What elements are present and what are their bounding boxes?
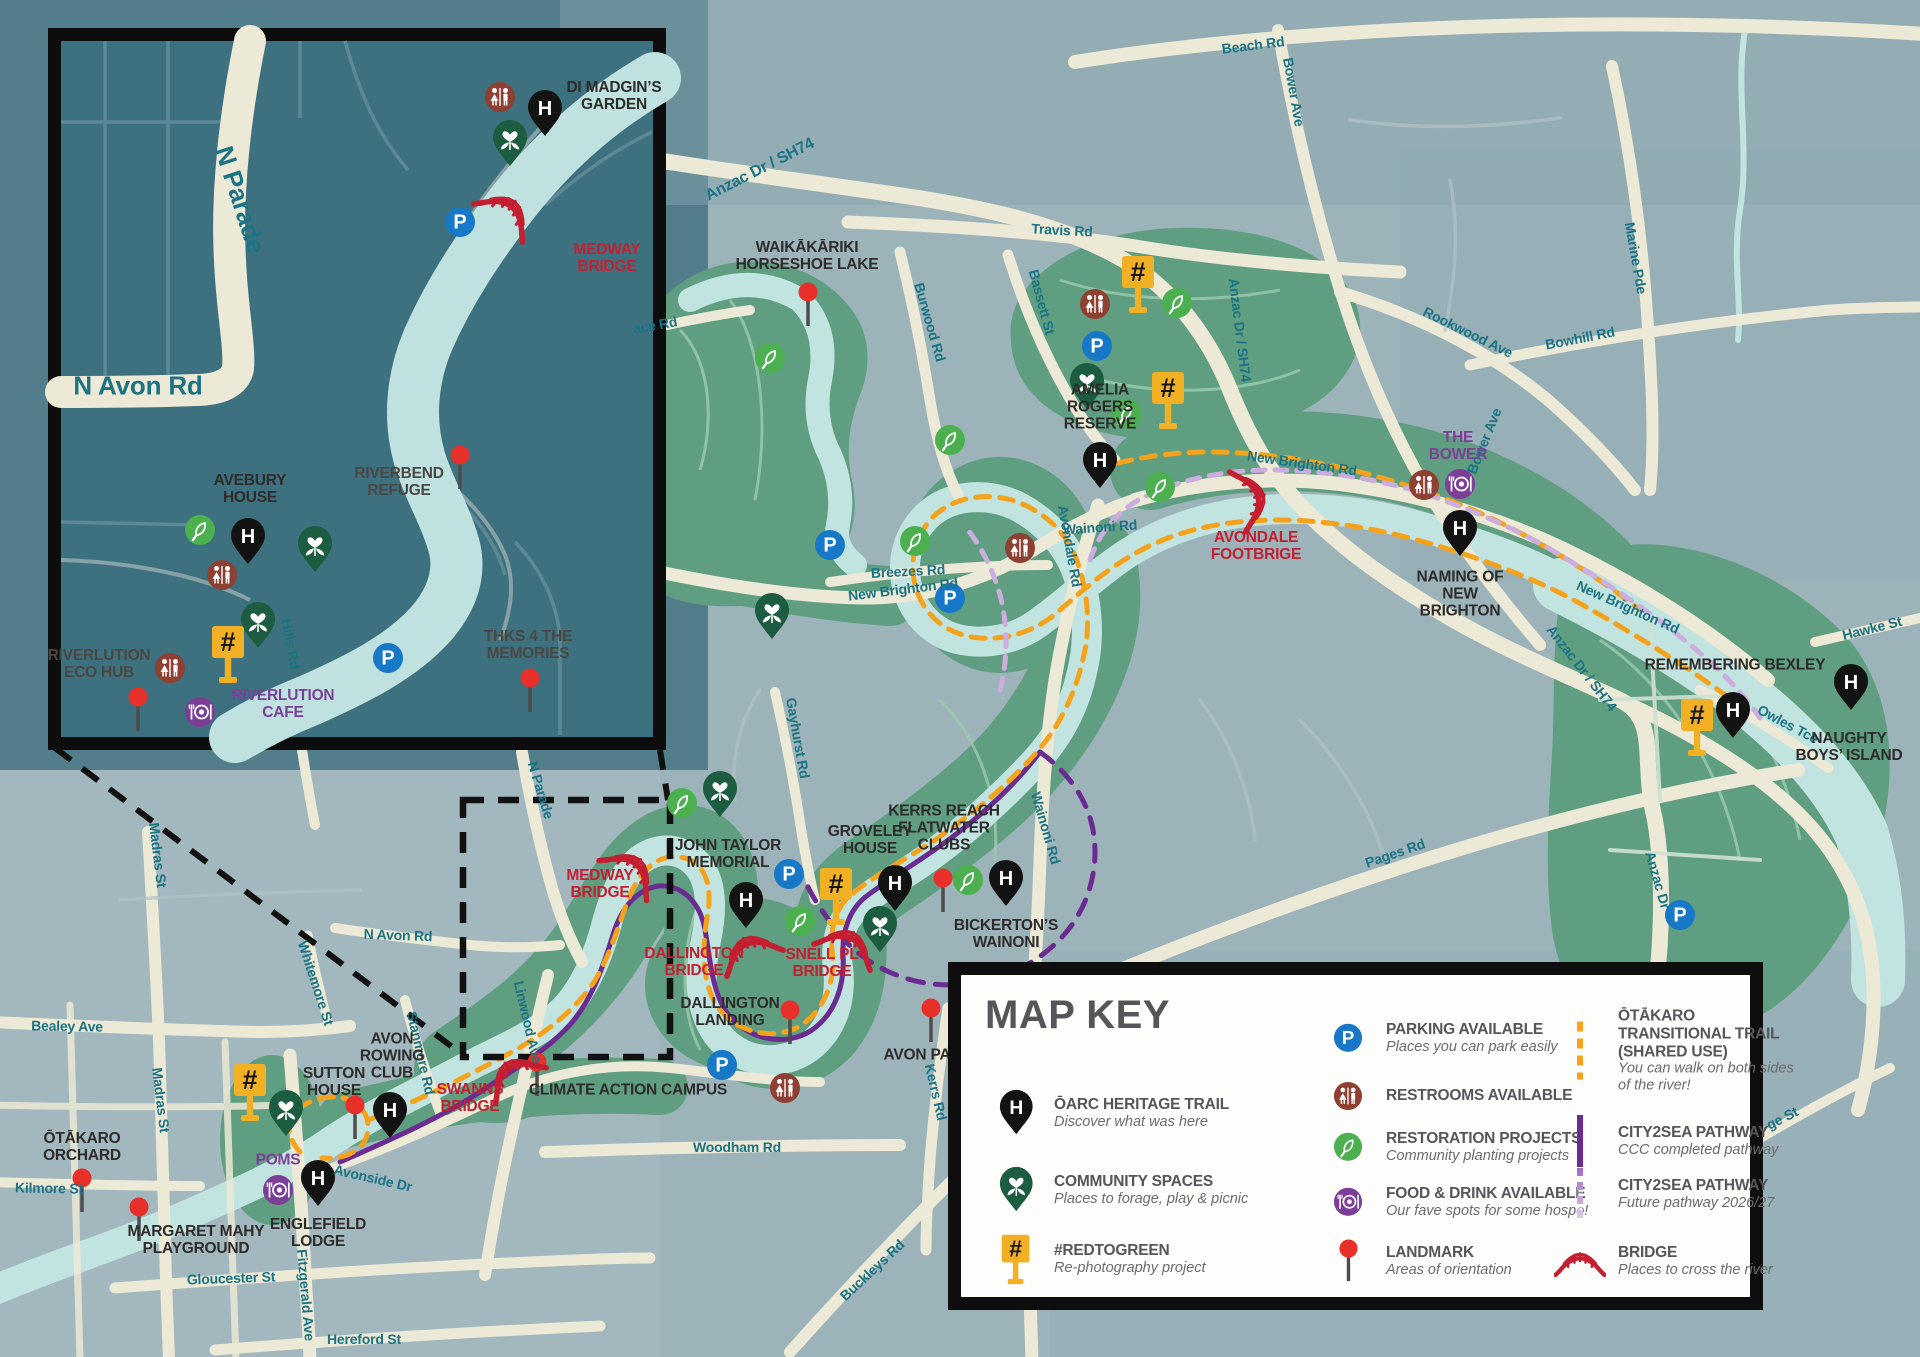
restoration-icon: [1111, 399, 1141, 429]
key-item-desc: CCC completed pathway: [1618, 1142, 1808, 1159]
restoration-icon: [935, 425, 965, 455]
key-item-trail-orange: ŌTĀKARO TRANSITIONAL TRAIL (SHARED USE)Y…: [1554, 1008, 1808, 1095]
key-item-trail-purple: CITY2SEA PATHWAYCCC completed pathway: [1554, 1115, 1808, 1167]
trail-purple-swatch: [1577, 1115, 1583, 1167]
inset-map: [48, 28, 666, 750]
food-icon: [1322, 1187, 1374, 1217]
restroom-icon: [770, 1073, 800, 1103]
parking-icon: [774, 859, 804, 889]
map-key-items: ŌARC HERITAGE TRAILDiscover what was her…: [974, 988, 1737, 1284]
restroom-icon: [207, 560, 237, 590]
restoration-icon: [755, 343, 785, 373]
food-icon: [263, 1175, 293, 1205]
key-item-desc: Places to cross the river: [1618, 1262, 1808, 1279]
trail-orange-icon: [1554, 1022, 1606, 1080]
parking-icon: [1322, 1023, 1374, 1053]
key-item-label: COMMUNITY SPACES: [1054, 1173, 1289, 1191]
parking-icon: [1082, 331, 1112, 361]
restroom-icon: [1080, 289, 1110, 319]
key-item-desc: You can walk on both sides of the river!: [1618, 1061, 1808, 1094]
map-canvas: H P: [0, 0, 1920, 1357]
parking-icon: [1665, 900, 1695, 930]
key-item-label: CITY2SEA PATHWAY: [1618, 1124, 1808, 1142]
landmark-icon: [1322, 1238, 1374, 1284]
restoration-icon: [185, 515, 215, 545]
food-icon: [185, 697, 215, 727]
key-item-label: #REDTOGREEN: [1054, 1242, 1289, 1260]
key-item-heritage: ŌARC HERITAGE TRAILDiscover what was her…: [990, 1088, 1289, 1138]
restroom-icon: [485, 82, 515, 112]
restoration-icon: [1322, 1132, 1374, 1162]
key-item-redtogreen: #REDTOGREENRe-photography project: [990, 1233, 1289, 1285]
food-icon: [1445, 469, 1475, 499]
key-item-label: BRIDGE: [1618, 1244, 1808, 1262]
trail-orange-swatch: [1577, 1022, 1583, 1080]
trail-lilac-icon: [1554, 1168, 1606, 1220]
heritage-icon: [990, 1088, 1042, 1138]
key-item-desc: Re-photography project: [1054, 1260, 1289, 1277]
bridge-icon: [1554, 1244, 1606, 1278]
parking-icon: [935, 583, 965, 613]
parking-icon: [445, 207, 475, 237]
key-item-desc: Discover what was here: [1054, 1114, 1289, 1131]
restoration-icon: [785, 906, 815, 936]
parking-icon: [815, 530, 845, 560]
trail-purple-icon: [1554, 1115, 1606, 1167]
key-item-label: CITY2SEA PATHWAY: [1618, 1177, 1808, 1195]
restoration-icon: [1162, 288, 1192, 318]
parking-icon: [707, 1050, 737, 1080]
trail-lilac-swatch: [1577, 1168, 1583, 1220]
key-item-label: ŌTĀKARO TRANSITIONAL TRAIL (SHARED USE): [1618, 1008, 1808, 1061]
key-item-desc: Future pathway 2026/27: [1618, 1195, 1808, 1212]
restoration-icon: [667, 788, 697, 818]
key-item-community: COMMUNITY SPACESPlaces to forage, play &…: [990, 1165, 1289, 1215]
community-icon: [990, 1165, 1042, 1215]
parking-icon: [373, 643, 403, 673]
key-item-trail-lilac: CITY2SEA PATHWAYFuture pathway 2026/27: [1554, 1168, 1808, 1220]
key-item-label: ŌARC HERITAGE TRAIL: [1054, 1096, 1289, 1114]
restroom-icon: [155, 653, 185, 683]
restoration-icon: [900, 526, 930, 556]
restroom-icon: [1005, 533, 1035, 563]
restroom-icon: [1409, 470, 1439, 500]
redtogreen-icon: [990, 1233, 1042, 1285]
restroom-icon: [1322, 1081, 1374, 1111]
key-item-bridge: BRIDGEPlaces to cross the river: [1554, 1244, 1808, 1278]
restoration-icon: [953, 865, 983, 895]
restoration-icon: [1145, 472, 1175, 502]
key-item-desc: Places to forage, play & picnic: [1054, 1191, 1289, 1208]
map-key-panel: MAP KEY ŌARC HERITAGE TRAILDiscover what…: [948, 962, 1763, 1310]
